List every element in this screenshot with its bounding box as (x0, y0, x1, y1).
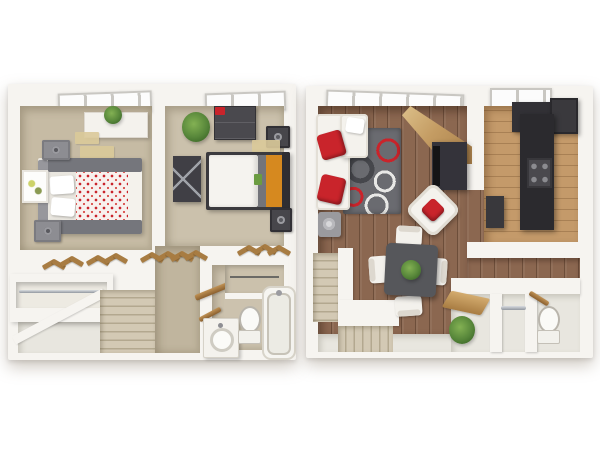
bed2-green-accent (254, 174, 262, 185)
bed2-orange-blanket (266, 155, 283, 207)
bedroom2-rug (252, 140, 280, 152)
kitchen-doorway-floor (467, 190, 484, 242)
bed1-blanket-top (48, 158, 142, 172)
bed1-foot-fold (128, 172, 142, 220)
bedroom1-rug-small (75, 132, 99, 144)
main-staircase-lower-flight (338, 326, 393, 352)
halfbath-wall-left (490, 294, 502, 352)
dining-chair-bottom (394, 295, 422, 317)
toilet-tank (537, 330, 560, 344)
linen-closet-rod (230, 276, 279, 278)
accent-chair-red-cushion (420, 197, 445, 222)
upper-staircase (100, 290, 155, 353)
bedroom1-speaker-top (42, 140, 70, 160)
bedroom1-speaker-bottom (34, 220, 61, 242)
entry-shrub (449, 316, 475, 344)
bathroom-sink-vanity (203, 318, 239, 358)
bed1-pillow (50, 197, 75, 217)
clothes-hanger (60, 255, 84, 269)
bedroom1-dresser-plant (104, 106, 122, 124)
bedroom2-bed (206, 152, 290, 210)
clothes-hanger (104, 252, 128, 266)
side-table-decor (323, 218, 335, 230)
side-table (318, 212, 341, 237)
main-closet-rod (501, 306, 526, 310)
bed2-duvet (209, 155, 258, 207)
toilet-bowl (538, 306, 560, 333)
main-staircase-upper-flight (313, 253, 338, 322)
dining-table (384, 243, 439, 298)
stair-half-wall-horizontal (338, 300, 399, 326)
tv-screen (433, 146, 440, 186)
clothes-hanger (267, 244, 291, 258)
range-stove (527, 158, 552, 188)
bed1-blanket-bottom (48, 220, 142, 234)
sofa-white-pillow (345, 117, 365, 135)
bedroom2-dresser-red-item (215, 107, 225, 115)
bedroom1-wall-art (22, 170, 48, 203)
bathroom-toilet (238, 306, 259, 344)
bed1-pillow (49, 175, 74, 195)
closet-rod (19, 290, 104, 293)
bedroom2-media-console (173, 156, 201, 202)
bed2-headboard (282, 152, 290, 210)
bedroom2-plant (182, 112, 210, 142)
bathtub (262, 286, 296, 360)
bed1-comforter (76, 172, 128, 220)
refrigerator (550, 98, 578, 134)
tv-console (432, 142, 467, 190)
console-desk-counter (451, 278, 580, 294)
dining-table-plant (400, 259, 421, 280)
halfbath-wall-right (525, 294, 537, 352)
upper-floor-plan (8, 84, 296, 360)
bedroom1-rug-large (80, 146, 114, 158)
toilet-bowl (239, 306, 261, 333)
main-floor-plan (306, 86, 593, 358)
corridor-floor (467, 258, 580, 280)
bedroom2-speaker-bottom (270, 208, 292, 232)
toilet-tank (238, 330, 261, 344)
kitchen-side-cabinet (486, 196, 504, 228)
clothes-hanger (184, 249, 208, 263)
halfbath-toilet (537, 306, 558, 344)
floorplan-image (0, 0, 600, 450)
